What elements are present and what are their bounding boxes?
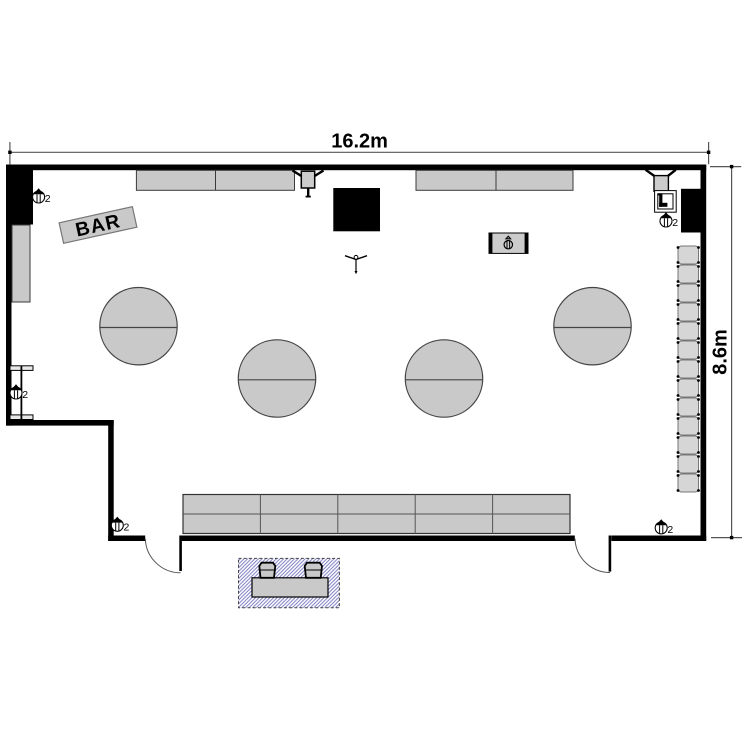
svg-text:2: 2: [667, 524, 673, 536]
svg-text:2: 2: [124, 521, 130, 533]
svg-text:2: 2: [672, 217, 678, 229]
svg-text:16.2m: 16.2m: [331, 130, 388, 152]
svg-text:8.6m: 8.6m: [709, 329, 731, 375]
svg-text:2: 2: [22, 389, 28, 401]
svg-text:2: 2: [45, 193, 51, 205]
